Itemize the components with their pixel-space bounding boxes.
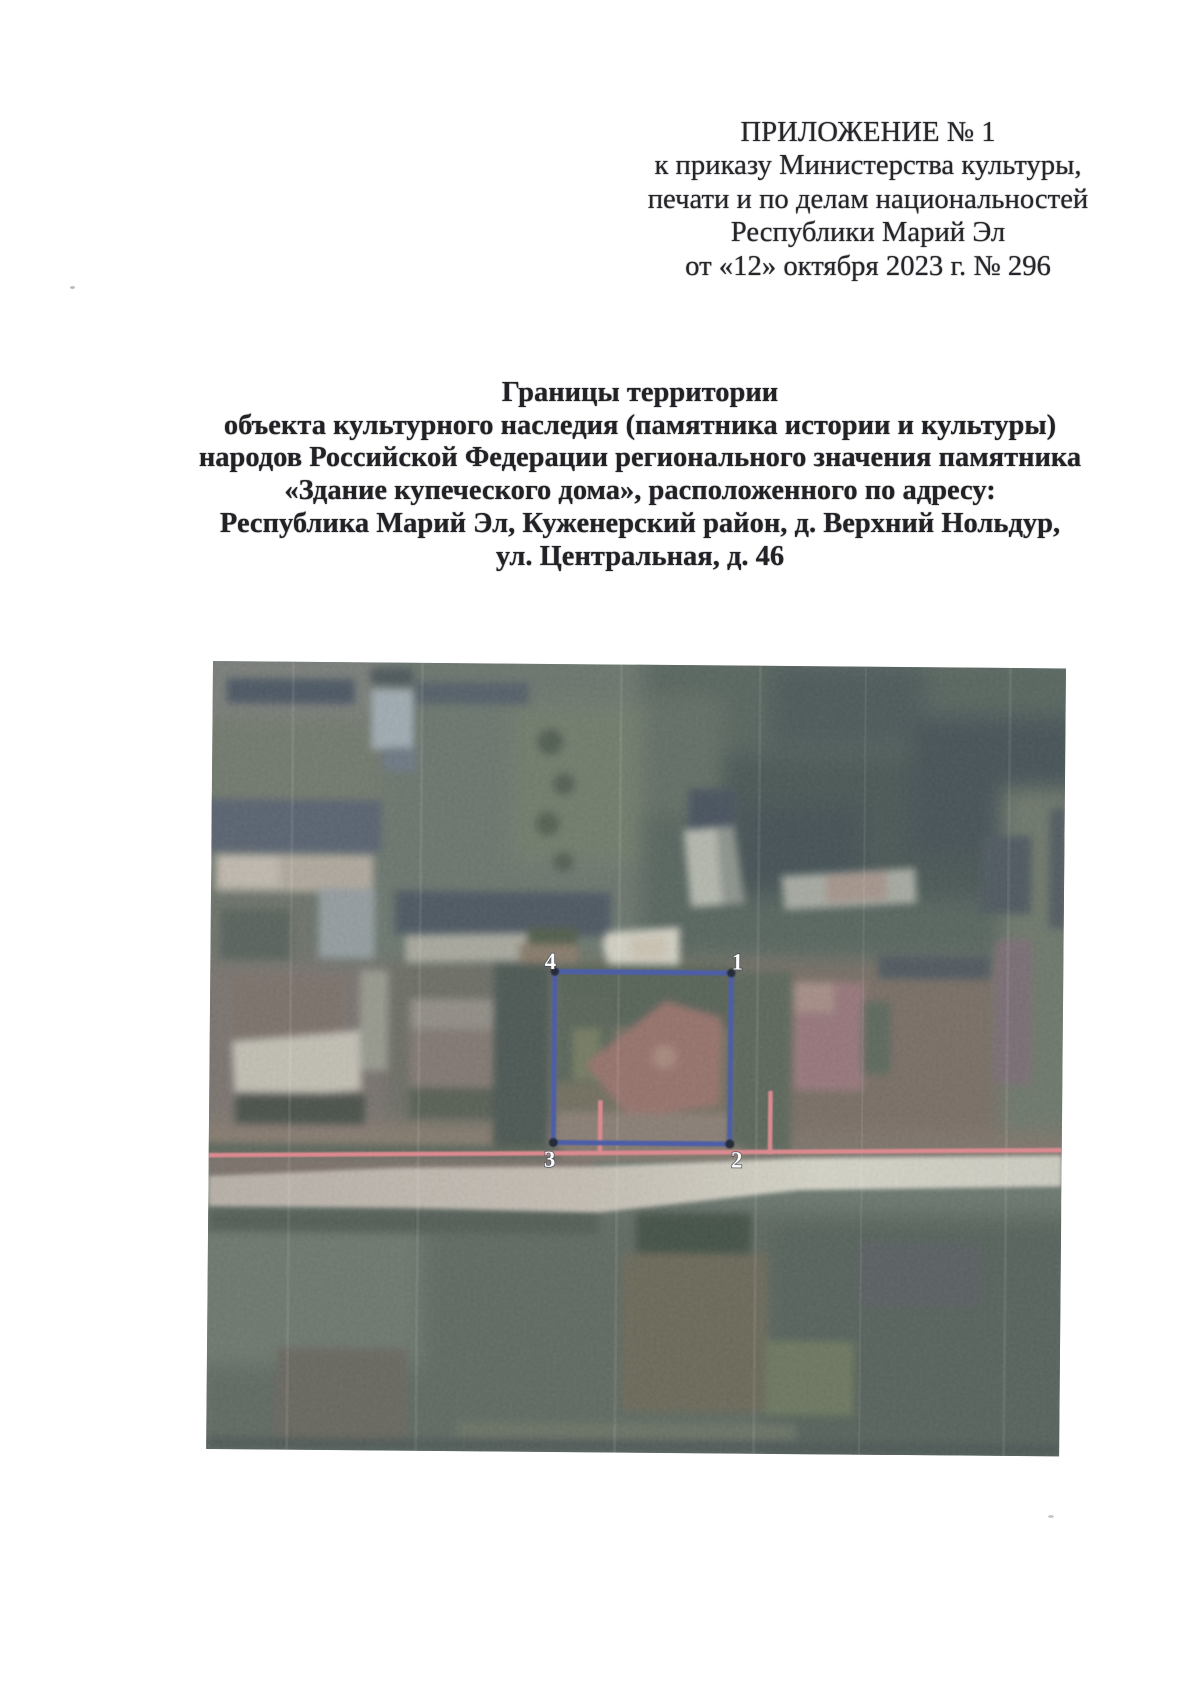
svg-text:1: 1 <box>732 950 744 975</box>
svg-text:4: 4 <box>545 949 557 974</box>
svg-text:3: 3 <box>544 1147 556 1172</box>
svg-text:2: 2 <box>731 1148 743 1173</box>
